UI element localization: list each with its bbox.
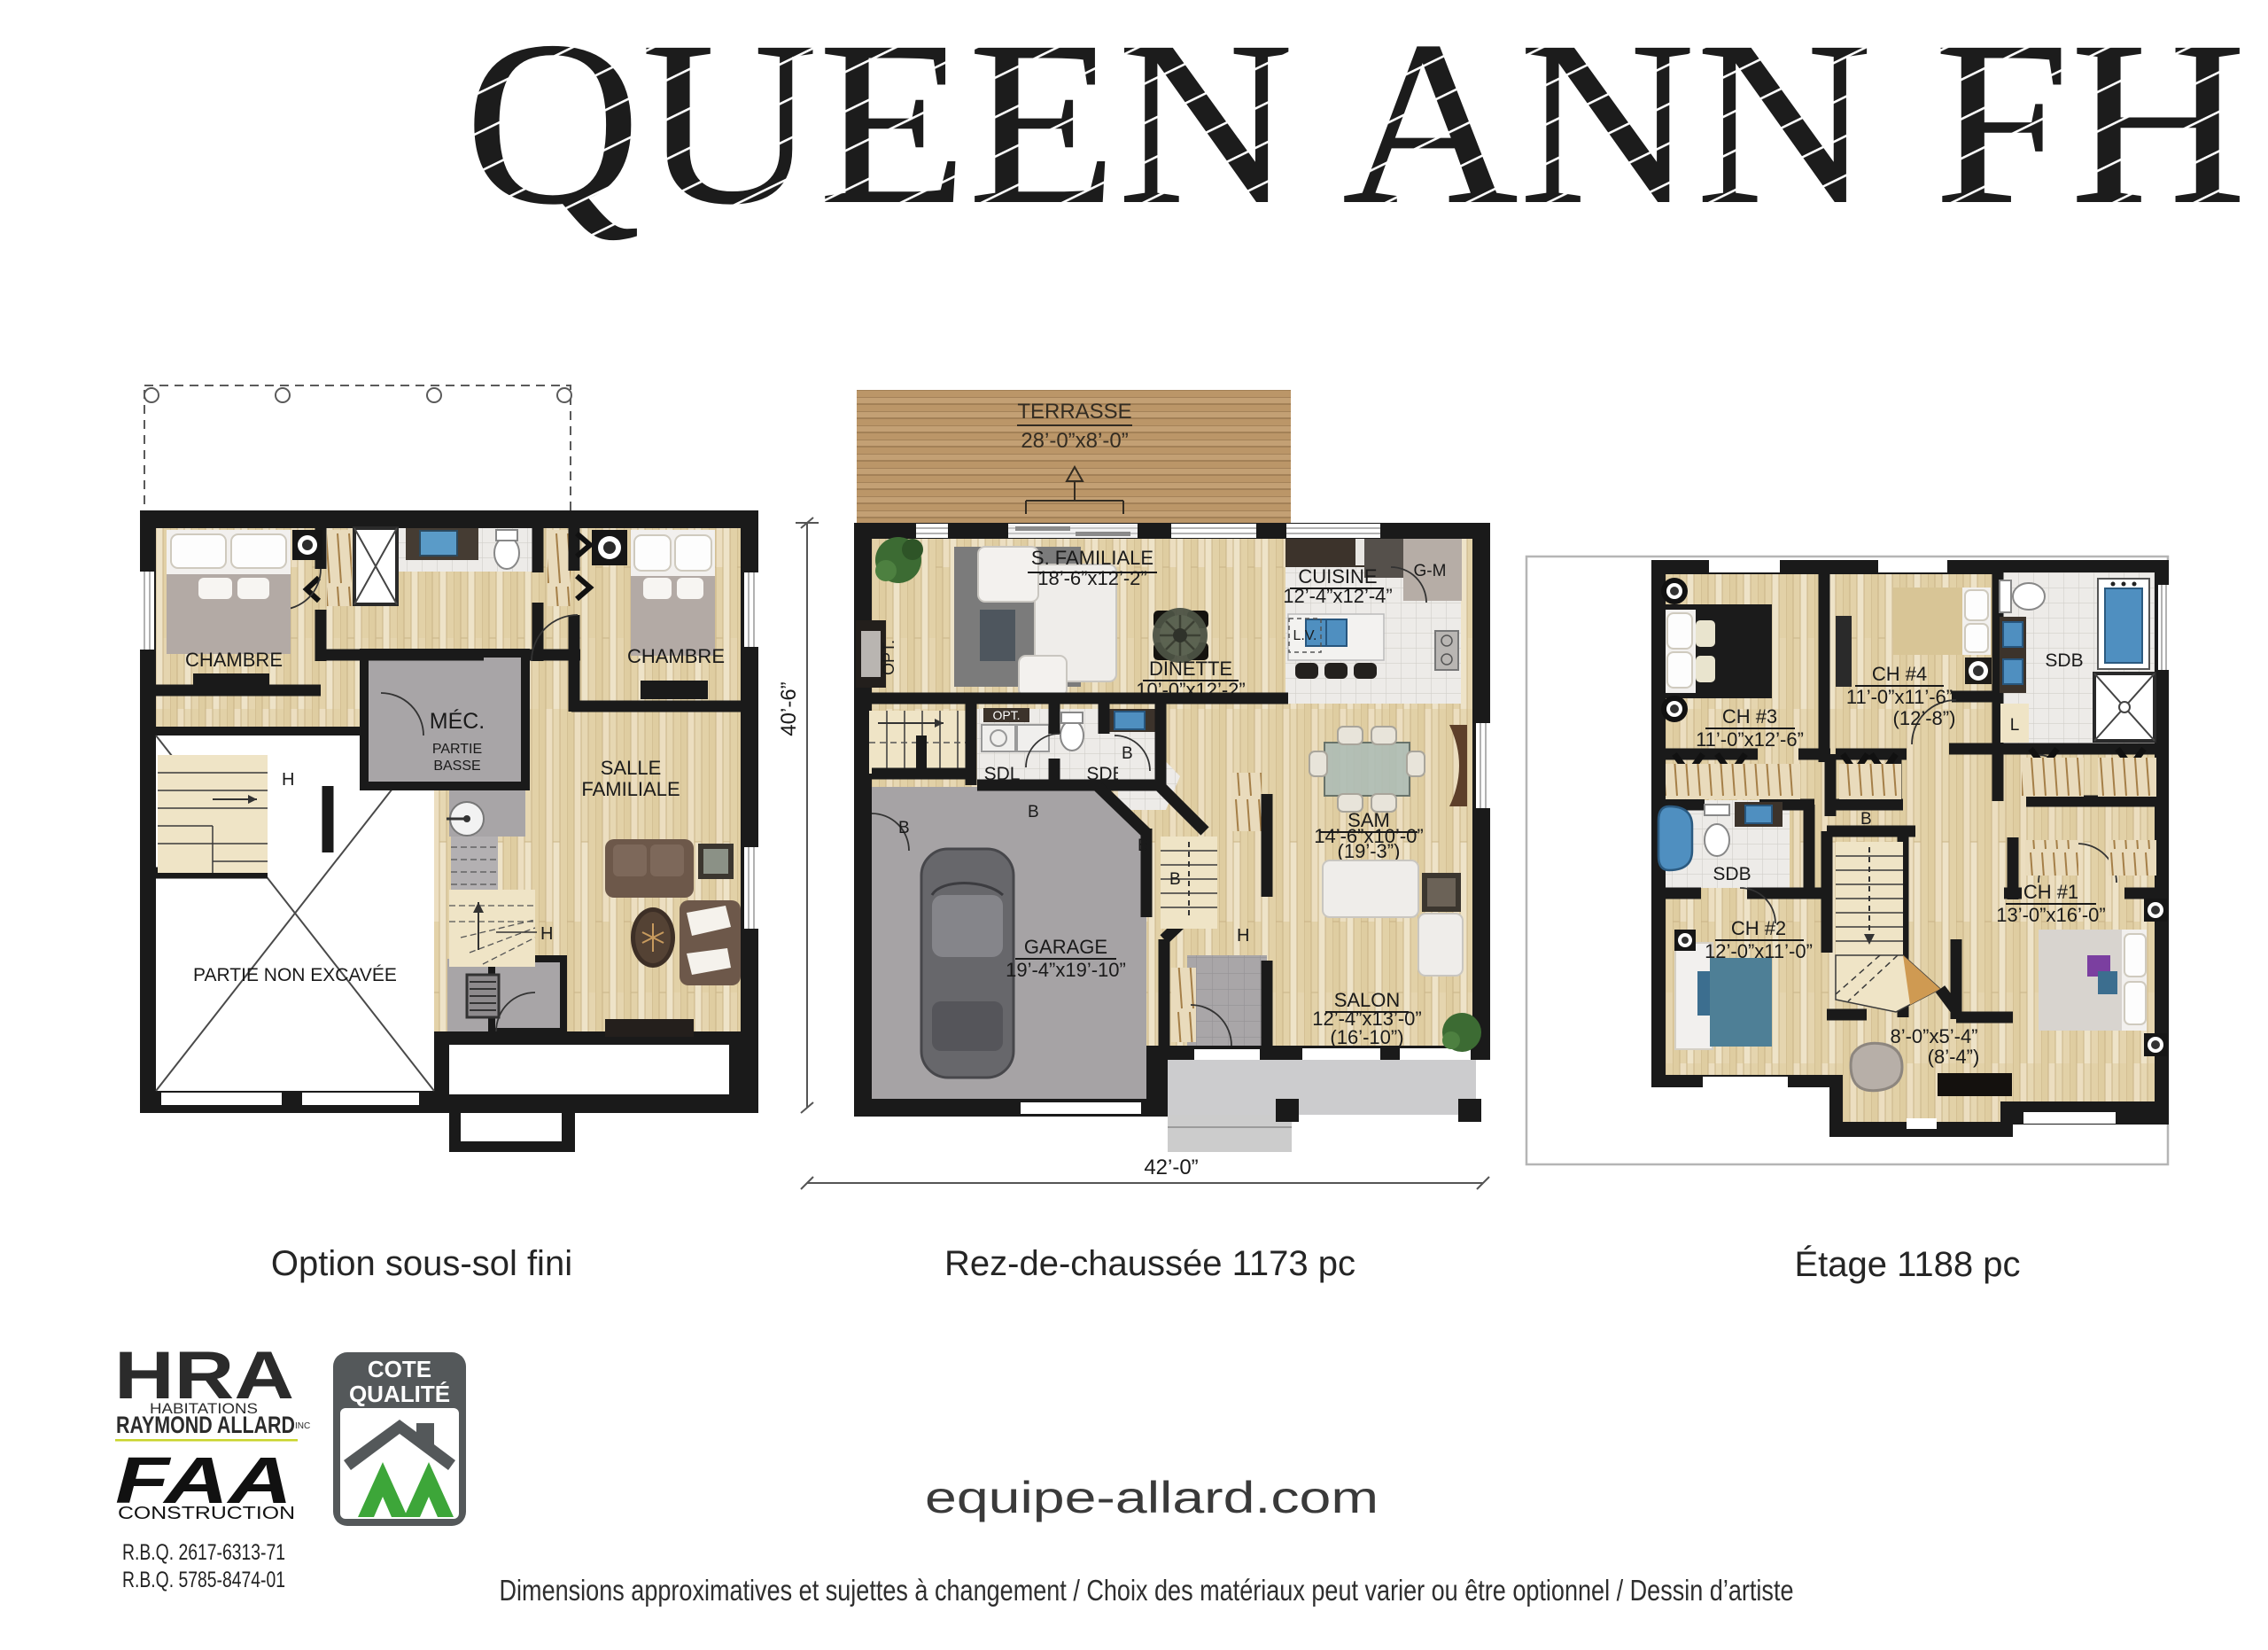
svg-text:PARTIE NON EXCAVÉE: PARTIE NON EXCAVÉE: [193, 965, 397, 985]
svg-text:Dimensions approximatives et s: Dimensions approximatives et sujettes à …: [500, 1574, 1794, 1607]
svg-text:CHAMBRE: CHAMBRE: [627, 645, 725, 667]
svg-text:B: B: [1122, 744, 1133, 763]
svg-text:R.B.Q. 5785-8474-01: R.B.Q. 5785-8474-01: [122, 1568, 285, 1592]
svg-text:equipe-allard.com: equipe-allard.com: [925, 1473, 1379, 1522]
svg-text:12’-0”x11’-0”: 12’-0”x11’-0”: [1705, 940, 1813, 962]
svg-text:SDB: SDB: [2045, 650, 2083, 671]
svg-text:Rez-de-chaussée 1173 pc: Rez-de-chaussée 1173 pc: [944, 1244, 1355, 1283]
svg-text:B: B: [1860, 810, 1872, 829]
svg-text:SALLE: SALLE: [601, 757, 662, 779]
svg-text:CONSTRUCTION: CONSTRUCTION: [118, 1504, 295, 1523]
svg-text:28’-0”x8’-0”: 28’-0”x8’-0”: [1021, 429, 1128, 453]
svg-text:PARTIE: PARTIE: [432, 742, 482, 757]
svg-text:Option sous-sol fini: Option sous-sol fini: [271, 1244, 572, 1283]
svg-text:S. FAMILIALE: S. FAMILIALE: [1031, 547, 1153, 569]
svg-text:L: L: [2010, 716, 2020, 735]
svg-text:18’-6”x12’-2”: 18’-6”x12’-2”: [1037, 567, 1147, 589]
svg-text:13’-0”x16’-0”: 13’-0”x16’-0”: [1996, 904, 2106, 926]
svg-text:Étage 1188 pc: Étage 1188 pc: [1794, 1244, 2020, 1284]
svg-text:CHAMBRE: CHAMBRE: [185, 649, 283, 671]
svg-text:SDB: SDB: [1713, 864, 1751, 884]
svg-text:B: B: [1169, 870, 1181, 889]
svg-text:11’-0”x11’-6”: 11’-0”x11’-6”: [1846, 686, 1953, 708]
svg-text:RAYMOND ALLARD: RAYMOND ALLARD: [116, 1412, 295, 1438]
svg-text:GARAGE: GARAGE: [1024, 936, 1107, 958]
svg-text:COTE: COTE: [368, 1356, 431, 1382]
svg-text:11’-0”x12’-6”: 11’-0”x12’-6”: [1696, 728, 1804, 751]
svg-text:CH #2: CH #2: [1731, 917, 1786, 939]
svg-text:H: H: [540, 924, 553, 944]
svg-text:H: H: [282, 770, 294, 790]
svg-text:G-M: G-M: [1414, 562, 1447, 580]
svg-text:INC: INC: [295, 1421, 310, 1431]
svg-text:TERRASSE: TERRASSE: [1017, 400, 1131, 424]
svg-text:QUEEN ANN FH: QUEEN ANN FH: [464, 0, 2247, 253]
svg-text:R.B.Q. 2617-6313-71: R.B.Q. 2617-6313-71: [122, 1540, 285, 1565]
svg-text:B: B: [1028, 803, 1039, 821]
svg-text:DINETTE: DINETTE: [1149, 658, 1232, 680]
svg-text:QUALITÉ: QUALITÉ: [349, 1381, 450, 1407]
svg-text:MÉC.: MÉC.: [430, 708, 485, 734]
svg-text:OPT.: OPT.: [880, 640, 897, 675]
svg-text:L.V.: L.V.: [1293, 628, 1317, 643]
svg-text:(12’-8”): (12’-8”): [1893, 707, 1956, 729]
svg-text:FAMILIALE: FAMILIALE: [581, 778, 680, 800]
svg-text:B: B: [1138, 837, 1149, 855]
svg-text:(16’-10”): (16’-10”): [1330, 1026, 1403, 1048]
svg-text:CH #4: CH #4: [1872, 663, 1927, 685]
svg-text:BASSE: BASSE: [433, 759, 480, 774]
svg-text:OPT.: OPT.: [992, 708, 1020, 722]
svg-text:CH #1: CH #1: [2023, 881, 2078, 903]
svg-text:42’-0”: 42’-0”: [1144, 1156, 1198, 1179]
svg-text:B: B: [898, 819, 910, 837]
svg-text:H: H: [1237, 926, 1249, 946]
svg-text:CH #3: CH #3: [1722, 705, 1777, 728]
svg-text:40’-6”: 40’-6”: [777, 681, 801, 735]
svg-text:8’-0”x5’-4”: 8’-0”x5’-4”: [1890, 1025, 1977, 1047]
svg-text:(8’-4”): (8’-4”): [1928, 1046, 1980, 1068]
svg-text:19’-4”x19’-10”: 19’-4”x19’-10”: [1006, 959, 1126, 981]
svg-text:(19’-3”): (19’-3”): [1338, 840, 1401, 862]
svg-text:12’-4”x12’-4”: 12’-4”x12’-4”: [1283, 585, 1393, 607]
